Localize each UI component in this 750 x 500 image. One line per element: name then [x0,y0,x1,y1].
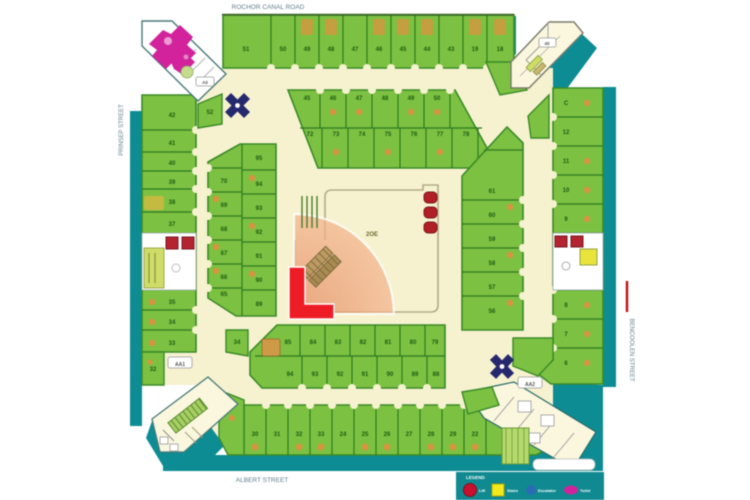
svg-text:37: 37 [169,222,176,228]
svg-text:33: 33 [169,341,176,347]
svg-text:11: 11 [563,159,570,165]
svg-text:46: 46 [330,96,337,102]
svg-text:90: 90 [387,372,394,378]
svg-text:C: C [564,101,569,107]
svg-text:45: 45 [304,96,311,102]
svg-text:92: 92 [337,372,344,378]
svg-text:65: 65 [221,292,228,298]
svg-text:49: 49 [304,47,311,53]
svg-text:91: 91 [362,372,369,378]
svg-text:91: 91 [256,254,263,260]
svg-text:LEGEND: LEGEND [466,475,486,480]
svg-text:61: 61 [489,189,496,195]
svg-text:41: 41 [169,141,176,147]
svg-text:18: 18 [497,47,504,53]
svg-text:PRINSEP STREET: PRINSEP STREET [119,104,125,156]
svg-text:19: 19 [472,47,479,53]
svg-text:25: 25 [362,432,369,438]
svg-text:Stairs: Stairs [507,488,519,493]
svg-text:57: 57 [489,285,496,291]
svg-text:94: 94 [256,182,263,188]
svg-text:89: 89 [412,372,419,378]
svg-text:34: 34 [169,320,176,326]
svg-text:76: 76 [411,132,418,138]
svg-text:45: 45 [400,47,407,53]
svg-text:56: 56 [489,309,496,315]
svg-text:50: 50 [434,96,441,102]
svg-text:2OE: 2OE [366,232,378,238]
svg-text:29: 29 [450,432,457,438]
svg-text:ALBERT STREET: ALBERT STREET [236,477,289,484]
svg-text:26: 26 [384,432,391,438]
svg-text:ROCHOR CANAL ROAD: ROCHOR CANAL ROAD [232,4,305,11]
svg-text:30: 30 [252,432,259,438]
svg-text:72: 72 [307,132,314,138]
svg-text:59: 59 [489,237,496,243]
svg-text:35: 35 [169,300,176,306]
svg-text:40: 40 [169,161,176,167]
svg-text:27: 27 [406,432,413,438]
svg-text:49: 49 [408,96,415,102]
svg-text:82: 82 [360,340,367,346]
svg-text:84: 84 [310,340,317,346]
svg-text:47: 47 [352,47,359,53]
svg-text:68: 68 [221,227,228,233]
svg-text:70: 70 [221,179,228,185]
svg-text:66: 66 [221,275,228,281]
svg-text:60: 60 [489,213,496,219]
svg-text:38: 38 [169,200,176,206]
svg-text:Toilet: Toilet [580,488,591,493]
svg-text:BENCOOLEN STREET: BENCOOLEN STREET [628,318,634,381]
svg-text:AA1: AA1 [175,362,185,368]
svg-text:80: 80 [410,340,417,346]
svg-text:28: 28 [428,432,435,438]
svg-text:40: 40 [544,41,550,46]
svg-text:81: 81 [385,340,392,346]
svg-text:39: 39 [169,180,176,186]
svg-text:83: 83 [335,340,342,346]
svg-text:58: 58 [489,261,496,267]
svg-text:77: 77 [437,132,444,138]
svg-text:67: 67 [221,251,228,257]
svg-text:Escalator: Escalator [538,488,556,493]
svg-text:52: 52 [207,110,214,116]
svg-text:79: 79 [432,340,439,346]
svg-text:50: 50 [280,47,287,53]
svg-text:93: 93 [256,206,263,212]
svg-text:12: 12 [563,130,570,136]
svg-text:34: 34 [234,340,241,346]
svg-text:90: 90 [256,278,263,284]
svg-text:69: 69 [221,203,228,209]
svg-text:A0: A0 [202,80,208,85]
svg-text:24: 24 [340,432,347,438]
svg-text:88: 88 [433,372,440,378]
svg-text:75: 75 [385,132,392,138]
svg-text:46: 46 [376,47,383,53]
svg-text:93: 93 [312,372,319,378]
svg-text:73: 73 [333,132,340,138]
svg-text:47: 47 [356,96,363,102]
svg-text:32: 32 [150,367,157,373]
svg-text:42: 42 [169,113,176,119]
svg-text:78: 78 [463,132,470,138]
svg-text:33: 33 [318,432,325,438]
svg-text:22: 22 [472,432,479,438]
svg-text:32: 32 [296,432,303,438]
svg-text:AA2: AA2 [525,382,535,388]
svg-text:51: 51 [243,47,250,53]
svg-text:10: 10 [563,188,570,194]
svg-text:48: 48 [382,96,389,102]
svg-text:48: 48 [328,47,335,53]
svg-text:89: 89 [256,302,263,308]
svg-text:95: 95 [256,156,263,162]
svg-text:94: 94 [287,372,294,378]
svg-text:43: 43 [448,47,455,53]
svg-text:44: 44 [424,47,431,53]
svg-text:74: 74 [359,132,366,138]
svg-text:31: 31 [274,432,281,438]
svg-text:92: 92 [256,230,263,236]
svg-text:85: 85 [285,340,292,346]
svg-text:Lift: Lift [479,488,486,493]
